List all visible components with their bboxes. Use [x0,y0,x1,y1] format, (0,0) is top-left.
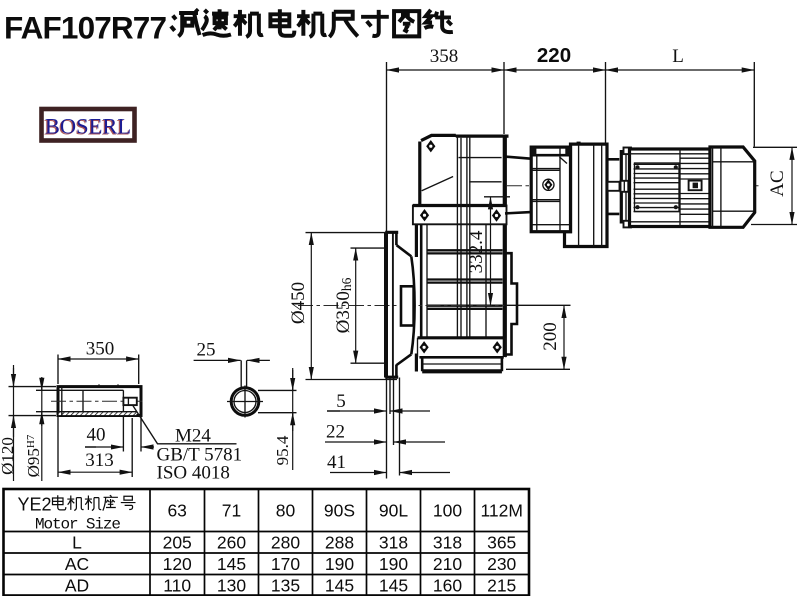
svg-text:YE2: YE2 [18,495,52,515]
svg-text:365: 365 [487,533,516,553]
svg-text:160: 160 [433,576,462,596]
svg-text:Ø120: Ø120 [0,437,17,475]
svg-text:AD: AD [65,576,89,596]
svg-text:130: 130 [217,576,246,596]
svg-text:170: 170 [271,554,300,574]
svg-text:90S: 90S [324,501,355,521]
svg-text:80: 80 [276,501,296,521]
svg-text:41: 41 [327,452,346,473]
svg-text:332.4: 332.4 [466,230,487,273]
svg-text:220: 220 [537,44,571,67]
svg-text:205: 205 [163,533,192,553]
svg-text:190: 190 [379,554,408,574]
svg-text:Ø450: Ø450 [288,282,309,324]
svg-text:40: 40 [87,425,106,446]
svg-text:BOSERL: BOSERL [45,113,131,138]
svg-text:280: 280 [271,533,300,553]
svg-text:215: 215 [487,576,516,596]
svg-text:190: 190 [325,554,354,574]
svg-text:AC: AC [767,170,788,196]
svg-text:25: 25 [197,340,216,361]
svg-text:350: 350 [86,339,115,360]
svg-text:AC: AC [65,554,89,574]
svg-text:ISO 4018: ISO 4018 [157,463,230,484]
svg-text:260: 260 [217,533,246,553]
svg-text:Motor Size: Motor Size [35,516,121,534]
svg-text:358: 358 [430,46,459,67]
svg-text:22: 22 [326,422,345,443]
svg-text:M24: M24 [175,426,211,447]
svg-text:100: 100 [433,501,462,521]
svg-text:313: 313 [85,450,114,471]
svg-text:5: 5 [336,391,346,412]
svg-text:120: 120 [163,554,192,574]
svg-text:L: L [72,533,82,553]
svg-text:110: 110 [163,576,191,596]
svg-text:145: 145 [325,576,354,596]
svg-text:90L: 90L [379,501,408,521]
svg-text:71: 71 [222,501,241,521]
svg-text:95.4: 95.4 [273,435,292,465]
svg-text:200: 200 [540,322,561,351]
svg-text:288: 288 [325,533,354,553]
svg-text:230: 230 [487,554,516,574]
svg-text:145: 145 [379,576,408,596]
svg-text:210: 210 [433,554,462,574]
svg-text:112M: 112M [480,501,522,521]
svg-text:FAF107R77: FAF107R77 [4,10,167,46]
svg-text:145: 145 [217,554,246,574]
svg-text:318: 318 [379,533,408,553]
svg-text:63: 63 [167,501,186,521]
svg-text:L: L [672,46,684,67]
svg-text:135: 135 [271,576,300,596]
svg-text:318: 318 [433,533,462,553]
